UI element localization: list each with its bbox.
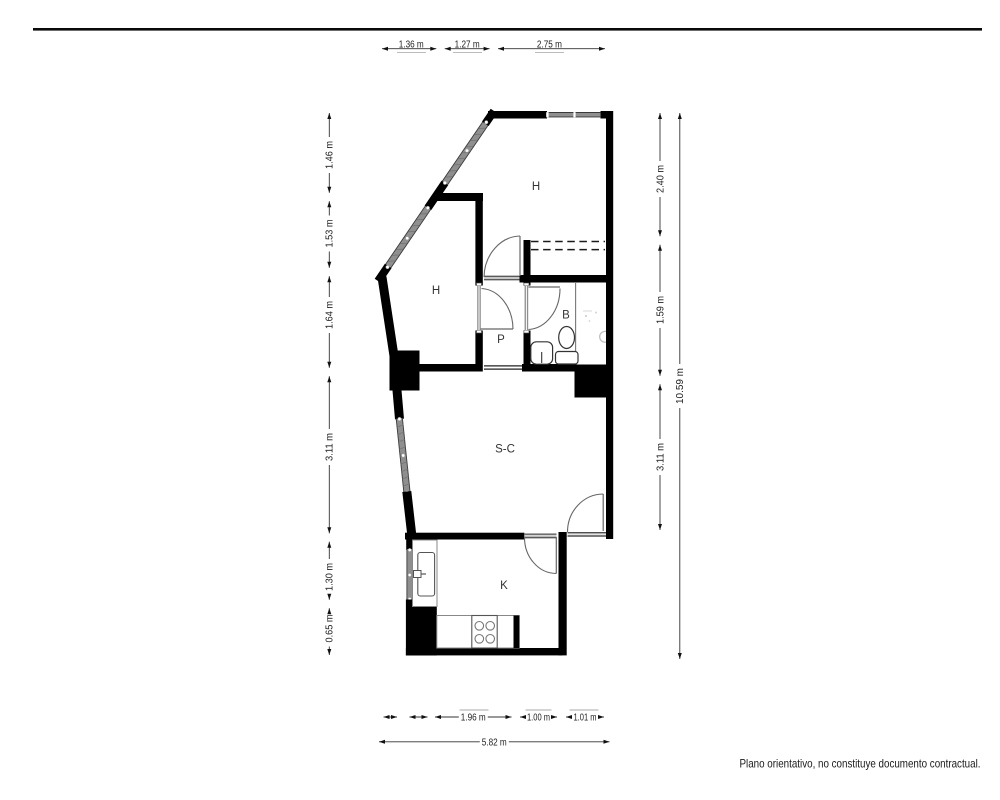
svg-text:2.75 m: 2.75 m [537, 39, 562, 50]
svg-text:Plano orientativo, no constitu: Plano orientativo, no constituye documen… [740, 757, 981, 771]
svg-text:2.40 m: 2.40 m [655, 165, 666, 193]
svg-text:H: H [432, 285, 440, 297]
svg-text:10.59 m: 10.59 m [675, 368, 686, 404]
svg-text:1.53 m: 1.53 m [325, 220, 336, 248]
svg-text:1.59 m: 1.59 m [655, 296, 666, 324]
svg-text:5.82 m: 5.82 m [482, 737, 507, 748]
svg-text:3.11 m: 3.11 m [325, 433, 336, 461]
svg-text:1.46 m: 1.46 m [325, 141, 336, 169]
svg-text:1.30 m: 1.30 m [325, 563, 336, 591]
svg-text:0.65 m: 0.65 m [325, 615, 336, 643]
svg-text:1.01 m: 1.01 m [574, 713, 597, 724]
svg-text:1.64 m: 1.64 m [325, 301, 336, 329]
svg-text:1.27 m: 1.27 m [455, 39, 480, 50]
svg-text:1.36 m: 1.36 m [399, 39, 424, 50]
svg-text:H: H [532, 181, 540, 193]
svg-text:K: K [500, 580, 508, 592]
svg-text:S-C: S-C [495, 444, 515, 456]
svg-text:B: B [562, 310, 570, 322]
svg-text:P: P [497, 334, 505, 346]
svg-text:1.96 m: 1.96 m [461, 713, 486, 724]
svg-text:1.00 m: 1.00 m [527, 713, 550, 724]
svg-text:3.11 m: 3.11 m [655, 443, 666, 471]
